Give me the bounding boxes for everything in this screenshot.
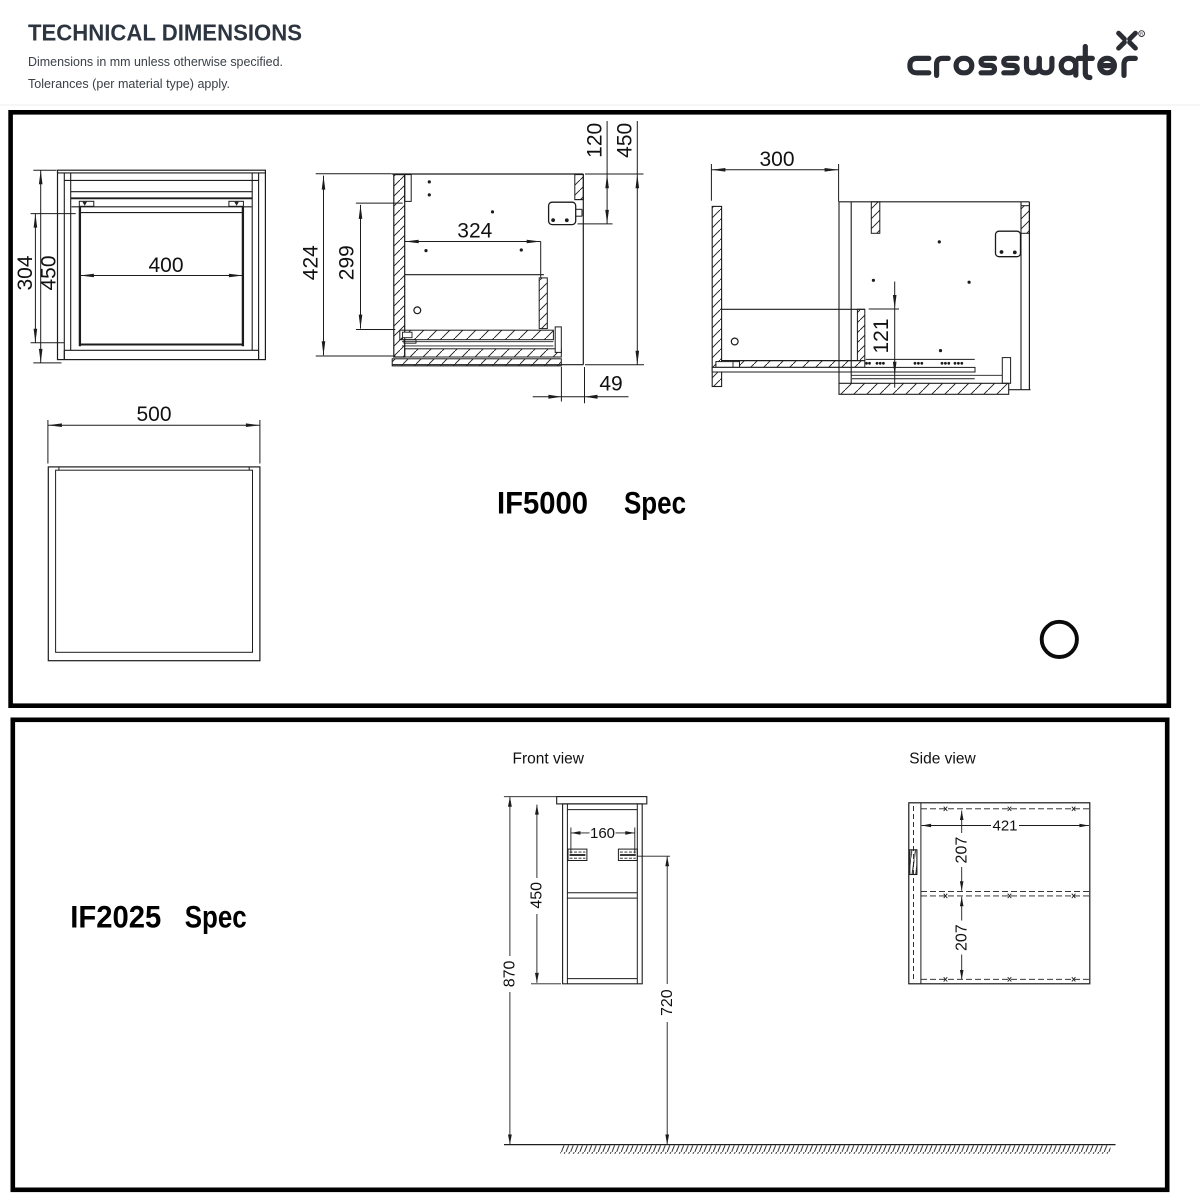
svg-text:450: 450 — [614, 123, 637, 158]
svg-text:870: 870 — [502, 960, 519, 987]
svg-text:IF2025: IF2025 — [70, 899, 161, 935]
svg-text:Tolerances (per material type): Tolerances (per material type) apply. — [28, 76, 230, 91]
svg-text:324: 324 — [457, 220, 492, 243]
svg-text:400: 400 — [148, 254, 183, 277]
svg-text:R: R — [1140, 31, 1143, 36]
svg-text:450: 450 — [529, 882, 546, 909]
svg-text:IF5000: IF5000 — [497, 484, 588, 520]
svg-text:299: 299 — [336, 245, 359, 280]
svg-text:Spec: Spec — [185, 899, 247, 935]
svg-text:160: 160 — [590, 825, 615, 842]
svg-text:207: 207 — [953, 924, 970, 951]
svg-text:Spec: Spec — [624, 484, 686, 520]
svg-text:Dimensions in mm unless otherw: Dimensions in mm unless otherwise specif… — [28, 54, 283, 69]
svg-text:424: 424 — [300, 245, 323, 280]
svg-text:207: 207 — [953, 837, 970, 864]
svg-text:720: 720 — [659, 989, 676, 1016]
svg-text:TECHNICAL DIMENSIONS: TECHNICAL DIMENSIONS — [28, 20, 302, 46]
svg-text:Side view: Side view — [909, 750, 976, 767]
svg-text:49: 49 — [599, 373, 622, 396]
svg-text:121: 121 — [870, 318, 893, 353]
svg-text:500: 500 — [136, 403, 171, 426]
svg-text:304: 304 — [14, 255, 37, 290]
svg-text:300: 300 — [759, 148, 794, 171]
svg-text:421: 421 — [992, 818, 1017, 835]
svg-text:Front view: Front view — [513, 750, 585, 767]
svg-text:450: 450 — [37, 255, 60, 290]
svg-text:120: 120 — [584, 123, 607, 158]
